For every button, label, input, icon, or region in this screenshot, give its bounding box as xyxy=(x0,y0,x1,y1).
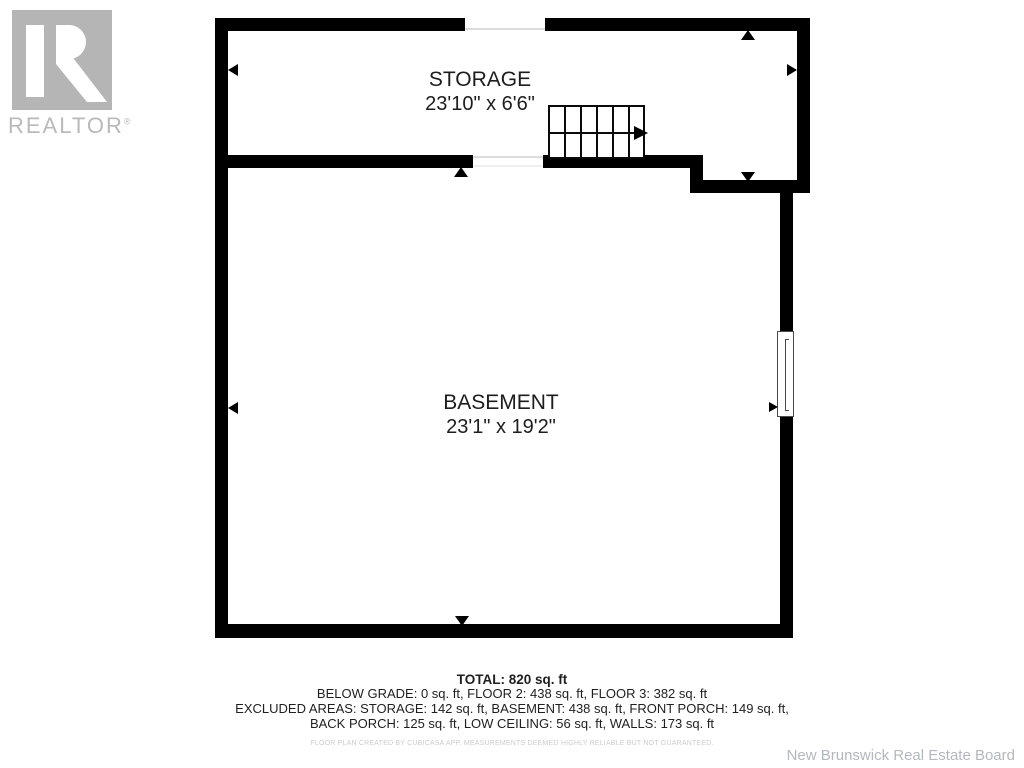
wall-right-storage xyxy=(797,18,810,193)
window xyxy=(777,331,794,417)
floor-plan-page: REALTOR® xyxy=(0,0,1024,768)
room-label-storage: STORAGE 23'10" x 6'6" xyxy=(380,68,580,116)
opening-divider-top xyxy=(473,156,543,158)
opening-top-wall xyxy=(465,28,545,30)
total-area-line: TOTAL: 820 sq. ft xyxy=(0,672,1024,687)
stair-direction-line xyxy=(550,132,636,134)
stair-direction-arrow-icon xyxy=(634,126,648,140)
registered-trademark-icon: ® xyxy=(124,117,131,127)
arrow-up-icon xyxy=(454,167,468,177)
wall-right-basement-upper xyxy=(780,193,793,333)
wall-right-basement-lower xyxy=(780,415,793,638)
area-summary: TOTAL: 820 sq. ft BELOW GRADE: 0 sq. ft,… xyxy=(0,672,1024,747)
realtor-word: REALTOR xyxy=(8,113,124,138)
room-dimensions: 23'10" x 6'6" xyxy=(380,93,580,116)
arrow-right-icon xyxy=(769,402,778,412)
realtor-logo-text: REALTOR® xyxy=(8,113,138,139)
room-label-basement: BASEMENT 23'1" x 19'2" xyxy=(401,391,601,439)
board-attribution: New Brunswick Real Estate Board xyxy=(787,747,1015,764)
room-dimensions: 23'1" x 19'2" xyxy=(401,416,601,439)
room-name: STORAGE xyxy=(380,68,580,92)
arrow-up-icon xyxy=(741,30,755,40)
summary-line-excluded: EXCLUDED AREAS: STORAGE: 142 sq. ft, BAS… xyxy=(0,702,1024,717)
wall-top-right xyxy=(545,18,810,31)
room-name: BASEMENT xyxy=(401,391,601,415)
opening-divider-bottom xyxy=(473,165,543,167)
window-pane-line xyxy=(785,339,789,411)
summary-line-grades: BELOW GRADE: 0 sq. ft, FLOOR 2: 438 sq. … xyxy=(0,687,1024,702)
realtor-r-icon xyxy=(12,10,112,110)
summary-line-excluded-cont: BACK PORCH: 125 sq. ft, LOW CEILING: 56 … xyxy=(0,717,1024,732)
arrow-right-icon xyxy=(787,64,797,76)
arrow-down-icon xyxy=(455,616,469,626)
wall-bottom xyxy=(215,624,793,638)
wall-divider-left xyxy=(215,155,473,168)
arrow-down-icon xyxy=(741,172,755,182)
wall-left xyxy=(215,18,228,638)
arrow-left-icon xyxy=(228,402,238,414)
wall-top-left xyxy=(215,18,465,31)
arrow-left-icon xyxy=(228,64,238,76)
